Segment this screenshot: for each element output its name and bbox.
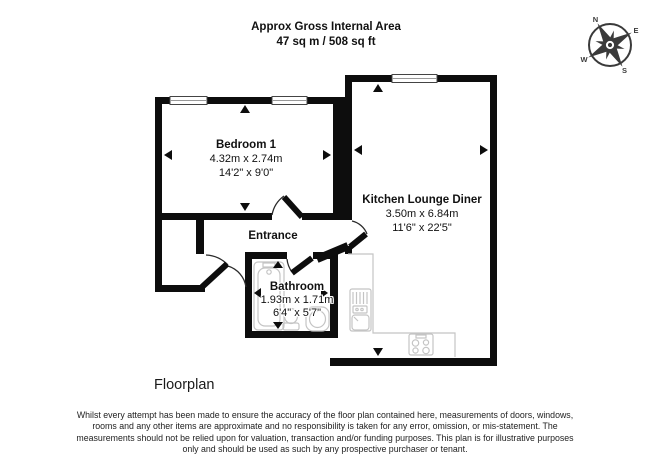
compass-letter-n: N [593,15,598,24]
hob-vent [416,335,426,338]
dimension-arrow-left [354,145,362,155]
room-label-entrance: Entrance [248,229,297,243]
sink-tap-ledge [353,306,367,313]
door-leaf [202,264,227,287]
sink-tap [356,308,358,310]
area-header-line1: Approx Gross Internal Area [251,20,401,35]
floorplan-drawing: N E S W [0,0,650,469]
room-dim-metric: 1.93m x 1.71m [261,294,334,307]
compass-letter-e: E [633,26,638,35]
bath-tap [267,270,271,274]
compass-hub-dot [608,43,612,47]
door-leaf [350,234,366,247]
dimension-arrow-up [373,84,383,92]
room-name: Kitchen Lounge Diner [362,193,481,207]
room-dim-metric: 3.50m x 6.84m [362,207,481,221]
wall-segment [155,285,205,292]
kitchen-fixtures [348,254,455,357]
wall-segment [333,104,345,220]
dimension-arrow-right [480,145,488,155]
wall-segment [490,75,497,366]
hob-burner [423,347,429,353]
dimension-arrow-down [240,203,250,211]
wall-segment [330,358,497,366]
dimension-arrow-left [164,150,172,160]
shower-fitting [263,263,275,267]
room-label-bedroom: Bedroom 1 4.32m x 2.74m 14'2" x 9'0" [210,138,283,180]
compass-rose: N E S W [580,15,638,75]
area-header-line2: 47 sq m / 508 sq ft [251,35,401,50]
room-label-bathroom: Bathroom 1.93m x 1.71m 6'4" x 5'7" [261,281,334,320]
dimension-arrow-down [373,348,383,356]
room-name: Entrance [248,229,297,243]
door-swing-arc [228,266,246,287]
wall-segment [345,82,352,220]
room-name: Bathroom [261,281,334,294]
room-dim-imperial: 11'6" x 22'5" [362,221,481,235]
room-name: Bedroom 1 [210,138,283,152]
sink-drain-mark [354,317,358,321]
floorplan-caption: Floorplan [154,377,214,393]
floorplan-page: N E S W Approx Gross Internal Area 47 sq… [0,0,650,469]
hob-burner [413,348,418,353]
wall-segment [196,218,204,254]
door-leaf [284,197,302,217]
room-dim-imperial: 14'2" x 9'0" [210,166,283,180]
room-dim-metric: 4.32m x 2.74m [210,152,283,166]
door-leaf [292,258,312,273]
wall-segment [302,213,333,220]
area-header: Approx Gross Internal Area 47 sq m / 508… [251,20,401,50]
wall-segment [245,331,338,338]
room-label-kitchen: Kitchen Lounge Diner 3.50m x 6.84m 11'6"… [362,193,481,235]
wall-segment [245,252,252,338]
hob-burner [423,340,428,345]
compass-letter-w: W [580,55,588,64]
room-dim-imperial: 6'4" x 5'7" [261,307,334,320]
dimension-arrow-up [240,105,250,113]
disclaimer-text: Whilst every attempt has been made to en… [75,410,575,456]
hob-burner [412,340,418,346]
compass-letter-s: S [622,66,627,75]
wall-segment [155,213,272,220]
sink-tap [361,308,363,310]
wall-segment [155,97,162,292]
dimension-arrow-right [323,150,331,160]
